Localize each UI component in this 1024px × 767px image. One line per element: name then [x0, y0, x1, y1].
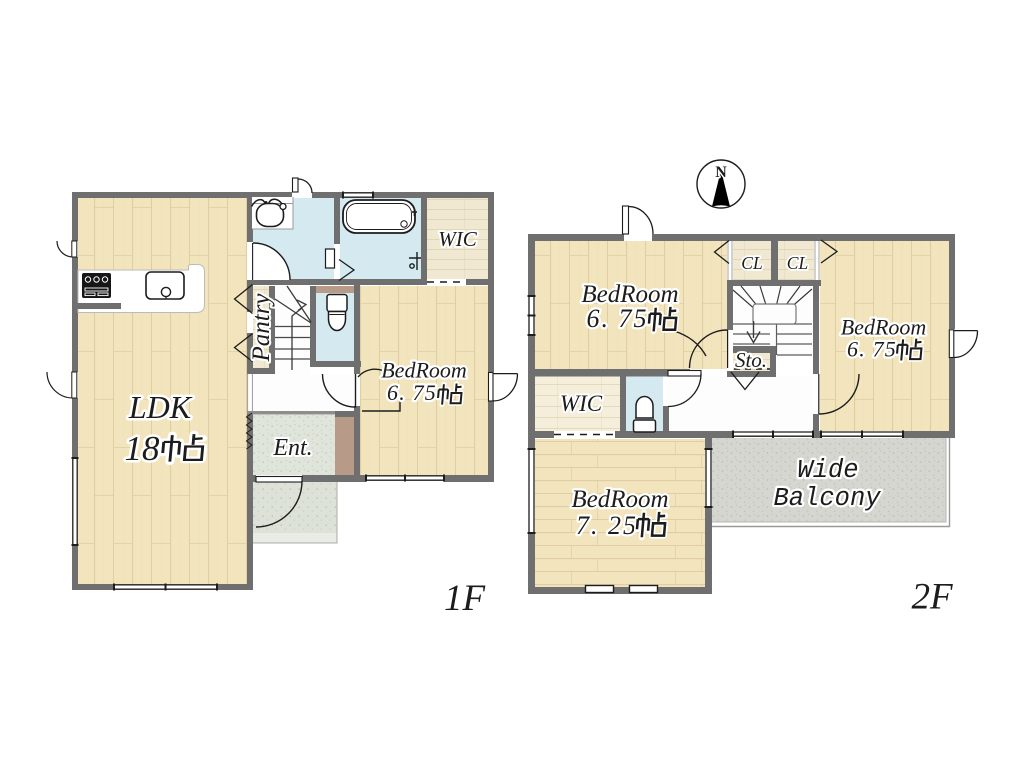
svg-text:BedRoom: BedRoom — [571, 486, 668, 513]
svg-text:6. 75: 6. 75 — [587, 304, 649, 333]
svg-text:7. 25: 7. 25 — [576, 511, 638, 540]
svg-text:18: 18 — [125, 429, 161, 468]
svg-text:WIC: WIC — [438, 227, 477, 251]
svg-text:LDK: LDK — [128, 389, 193, 425]
svg-text:6. 75: 6. 75 — [387, 380, 437, 405]
svg-text:CL: CL — [787, 253, 808, 273]
svg-text:Balcony: Balcony — [773, 484, 881, 513]
svg-text:Wide: Wide — [797, 456, 858, 485]
svg-text:Pantry: Pantry — [248, 293, 275, 363]
svg-text:6. 75: 6. 75 — [847, 337, 897, 362]
svg-text:WIC: WIC — [560, 391, 603, 416]
svg-text:BedRoom: BedRoom — [381, 358, 467, 383]
svg-text:1F: 1F — [444, 578, 486, 619]
svg-text:CL: CL — [741, 253, 762, 273]
svg-text:Sto.: Sto. — [735, 348, 767, 372]
svg-text:N: N — [715, 164, 727, 181]
svg-text:Ent.: Ent. — [272, 435, 312, 461]
svg-text:2F: 2F — [911, 577, 953, 618]
